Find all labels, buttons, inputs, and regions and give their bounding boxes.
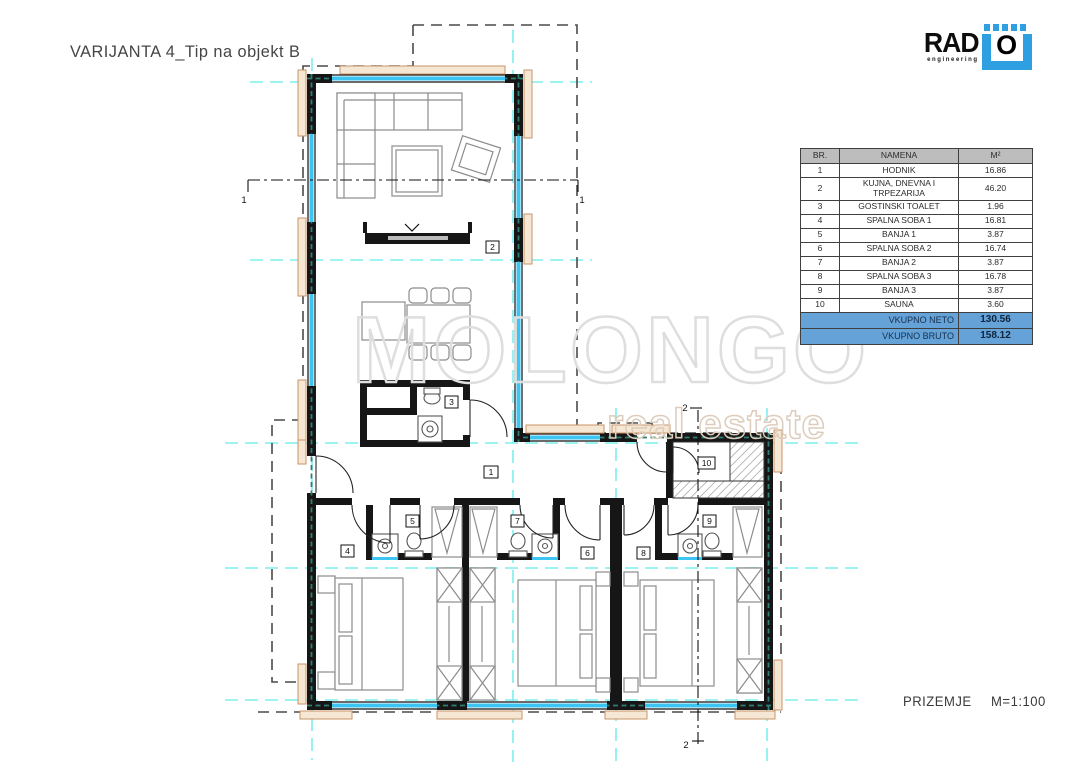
table-row: 2KUJNA, DNEVNA I TRPEZARIJA46.20 — [801, 178, 1033, 201]
table-row: 4SPALNA SOBA 116.81 — [801, 214, 1033, 228]
cell-name: SAUNA — [840, 298, 959, 312]
cell-name: KUJNA, DNEVNA I TRPEZARIJA — [840, 178, 959, 201]
section-label-2a: 2 — [682, 403, 687, 414]
room-label: 3 — [449, 397, 454, 407]
cell-area: 16.74 — [959, 242, 1033, 256]
section-label-1a: 1 — [241, 195, 246, 206]
cell-area: 46.20 — [959, 178, 1033, 201]
furniture — [318, 93, 762, 700]
cell-area: 3.87 — [959, 228, 1033, 242]
col-header-area: M² — [959, 149, 1033, 164]
door-swings — [316, 400, 699, 543]
cell-name: GOSTINSKI TOALET — [840, 200, 959, 214]
room-label: 9 — [707, 516, 712, 526]
table-row: 9BANJA 33.87 — [801, 284, 1033, 298]
cell-br: 9 — [801, 284, 840, 298]
cell-br: 8 — [801, 270, 840, 284]
scale-label: M=1:100 — [991, 694, 1046, 709]
section-label-2b: 2 — [683, 740, 688, 751]
total-neto-row: VKUPNO NETO 130.56 — [801, 312, 1033, 328]
cell-br: 6 — [801, 242, 840, 256]
table-row: 5BANJA 13.87 — [801, 228, 1033, 242]
cell-area: 3.87 — [959, 256, 1033, 270]
drawing-sheet: VARIJANTA 4_Tip na objekt B RAD engineer… — [0, 0, 1080, 763]
cell-area: 3.87 — [959, 284, 1033, 298]
floor-plan: 1 1 2 2 1 2 3 4 — [0, 0, 1080, 763]
room-label: 5 — [410, 516, 415, 526]
room-label: 4 — [345, 546, 350, 556]
cell-br: 5 — [801, 228, 840, 242]
cell-name: BANJA 1 — [840, 228, 959, 242]
room-label: 8 — [641, 548, 646, 558]
cell-name: SPALNA SOBA 2 — [840, 242, 959, 256]
floor-name: PRIZEMJE — [903, 694, 972, 709]
cell-name: BANJA 2 — [840, 256, 959, 270]
cell-br: 4 — [801, 214, 840, 228]
cell-name: BANJA 3 — [840, 284, 959, 298]
cell-br: 1 — [801, 164, 840, 178]
room-label: 7 — [515, 516, 520, 526]
table-row: 10SAUNA3.60 — [801, 298, 1033, 312]
cell-area: 3.60 — [959, 298, 1033, 312]
cell-area: 16.78 — [959, 270, 1033, 284]
cell-area: 1.96 — [959, 200, 1033, 214]
total-label: VKUPNO BRUTO — [801, 328, 959, 344]
table-row: 7BANJA 23.87 — [801, 256, 1033, 270]
cell-name: SPALNA SOBA 3 — [840, 270, 959, 284]
cell-area: 16.86 — [959, 164, 1033, 178]
plan-footer: PRIZEMJE M=1:100 — [903, 694, 1046, 709]
cell-name: SPALNA SOBA 1 — [840, 214, 959, 228]
room-label: 6 — [585, 548, 590, 558]
col-header-name: NAMENA — [840, 149, 959, 164]
table-row: 8SPALNA SOBA 316.78 — [801, 270, 1033, 284]
cell-br: 3 — [801, 200, 840, 214]
room-label: 10 — [702, 458, 712, 468]
total-value: 158.12 — [959, 328, 1033, 344]
total-label: VKUPNO NETO — [801, 312, 959, 328]
table-header-row: BR. NAMENA M² — [801, 149, 1033, 164]
room-label: 1 — [489, 467, 494, 477]
cell-name: HODNIK — [840, 164, 959, 178]
table-row: 3GOSTINSKI TOALET1.96 — [801, 200, 1033, 214]
table-row: 6SPALNA SOBA 216.74 — [801, 242, 1033, 256]
cell-br: 2 — [801, 178, 840, 201]
cell-area: 16.81 — [959, 214, 1033, 228]
table-row: 1HODNIK16.86 — [801, 164, 1033, 178]
room-areas-table: BR. NAMENA M² 1HODNIK16.86 2KUJNA, DNEVN… — [800, 148, 1033, 345]
total-bruto-row: VKUPNO BRUTO 158.12 — [801, 328, 1033, 344]
cell-br: 10 — [801, 298, 840, 312]
cell-br: 7 — [801, 256, 840, 270]
section-label-1b: 1 — [579, 195, 584, 206]
room-label: 2 — [490, 242, 495, 252]
total-value: 130.56 — [959, 312, 1033, 328]
col-header-br: BR. — [801, 149, 840, 164]
